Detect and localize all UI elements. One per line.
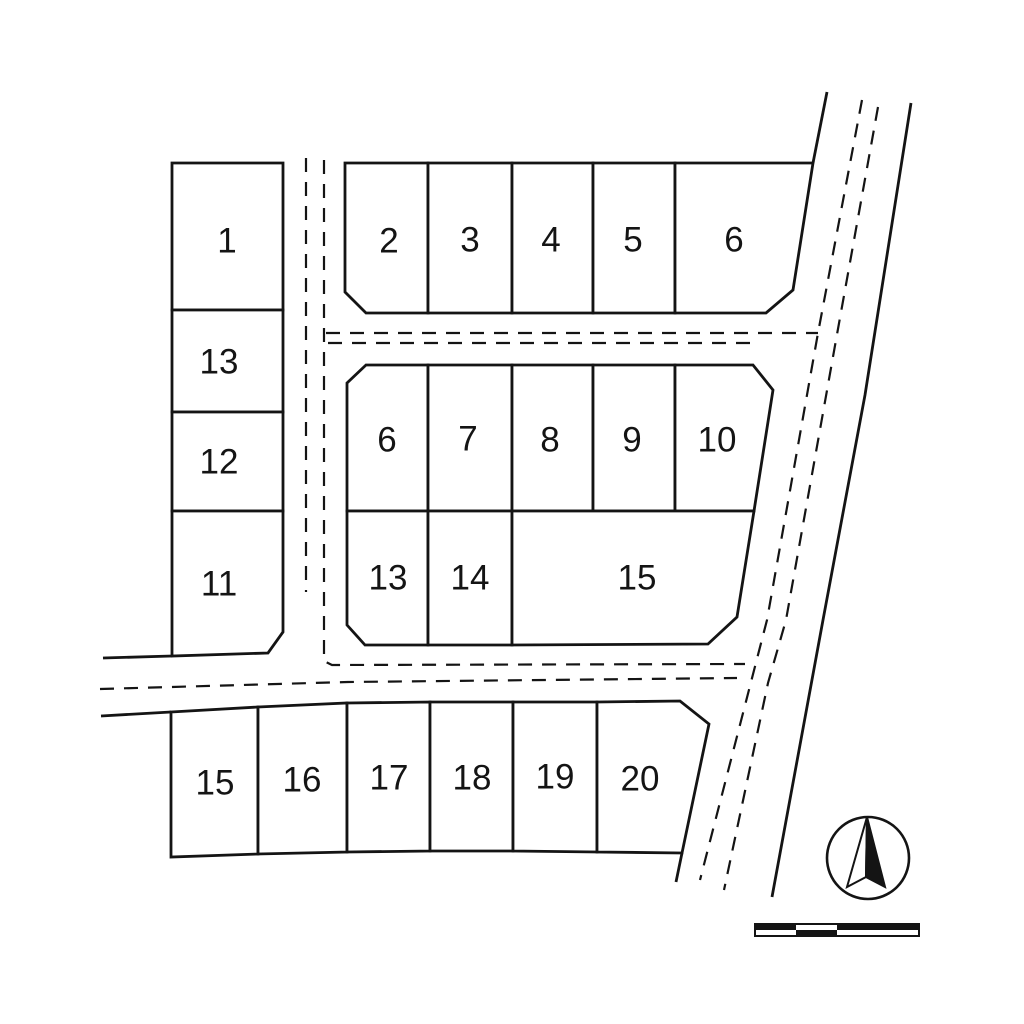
lot-label-north-6: 6 (724, 221, 743, 260)
lot-label-central-6: 6 (377, 421, 396, 460)
lot11-boundary-west-extension (103, 656, 172, 658)
lot-label-north-5: 5 (623, 221, 642, 260)
lot-label-south-16: 16 (283, 761, 322, 800)
plat-drawing: 113121123456678910131415151617181920 (0, 0, 1024, 1024)
south-block-boundary-west-extension (101, 712, 171, 716)
plat-svg: 113121123456678910131415151617181920 (0, 0, 1024, 1024)
lot-label-north-3: 3 (460, 221, 479, 260)
main-road-west-edge-upper (813, 92, 827, 163)
lot-label-west-11: 11 (201, 565, 237, 604)
lot-label-central-10: 10 (698, 421, 737, 460)
lot-label-south-20: 20 (621, 760, 660, 799)
lot-label-west-13: 13 (200, 343, 239, 382)
lot-label-west-1: 1 (217, 222, 236, 261)
lot-label-north-4: 4 (541, 221, 560, 260)
lot-label-south-17: 17 (370, 759, 409, 798)
lot-label-central-15: 15 (618, 559, 657, 598)
lot-label-south-15: 15 (196, 764, 235, 803)
lot-label-central-9: 9 (622, 421, 641, 460)
north-arrow-left-half-icon (847, 817, 867, 887)
lot-label-north-2: 2 (379, 222, 398, 261)
lot-north-6 (675, 163, 813, 313)
north-arrow-right-half-icon (866, 817, 885, 887)
lot-label-central-8: 8 (540, 421, 559, 460)
lot-label-central-7: 7 (458, 420, 477, 459)
lot-label-south-19: 19 (536, 758, 575, 797)
lot-label-central-13: 13 (369, 559, 408, 598)
lot-label-south-18: 18 (453, 759, 492, 798)
south-road-dashed (100, 678, 737, 689)
lot-label-central-14: 14 (451, 559, 490, 598)
main-road-west-edge-lower-stub (676, 853, 682, 882)
lot-label-west-12: 12 (200, 443, 239, 482)
